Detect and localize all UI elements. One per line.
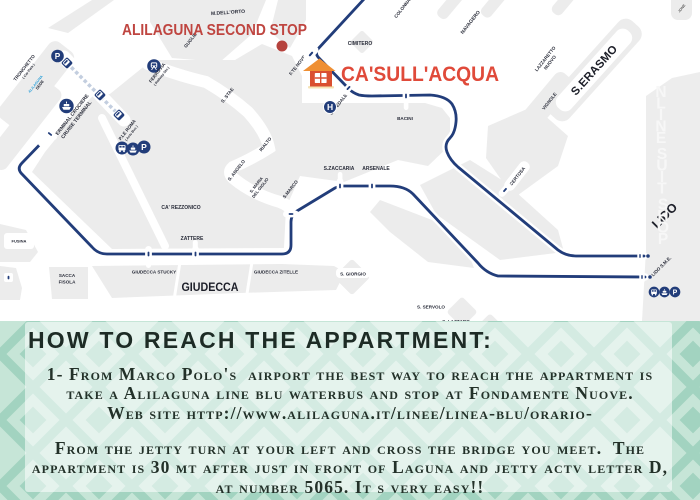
svg-text:ARSENALE: ARSENALE xyxy=(362,166,390,172)
svg-text:GIUDECCA STUCKY: GIUDECCA STUCKY xyxy=(132,270,177,275)
svg-text:CA'SULL'ACQUA: CA'SULL'ACQUA xyxy=(341,63,499,86)
svg-text:GIUDECCA ZITELLE: GIUDECCA ZITELLE xyxy=(254,270,298,275)
svg-text:FUSINA: FUSINA xyxy=(12,239,27,244)
svg-text:S.ZACCARIA: S.ZACCARIA xyxy=(324,166,355,172)
svg-text:CIMITERO: CIMITERO xyxy=(348,41,373,47)
svg-text:ZATTERE: ZATTERE xyxy=(181,236,204,242)
svg-text:S. GIORGIO: S. GIORGIO xyxy=(340,272,366,277)
svg-text:ALILAGUNA SECOND STOP: ALILAGUNA SECOND STOP xyxy=(122,22,307,39)
svg-text:BACINI: BACINI xyxy=(397,116,413,121)
svg-text:NAVAGERO: NAVAGERO xyxy=(460,10,482,36)
svg-text:FISOLA: FISOLA xyxy=(59,280,77,285)
svg-text:SACCA: SACCA xyxy=(59,273,76,278)
svg-text:H: H xyxy=(327,102,333,112)
svg-text:S. SERVOLO: S. SERVOLO xyxy=(417,305,445,310)
svg-text:CA' REZZONICO: CA' REZZONICO xyxy=(161,205,200,211)
svg-text:GIUDECCA: GIUDECCA xyxy=(182,280,239,294)
svg-text:COLONNA: COLONNA xyxy=(393,0,412,19)
